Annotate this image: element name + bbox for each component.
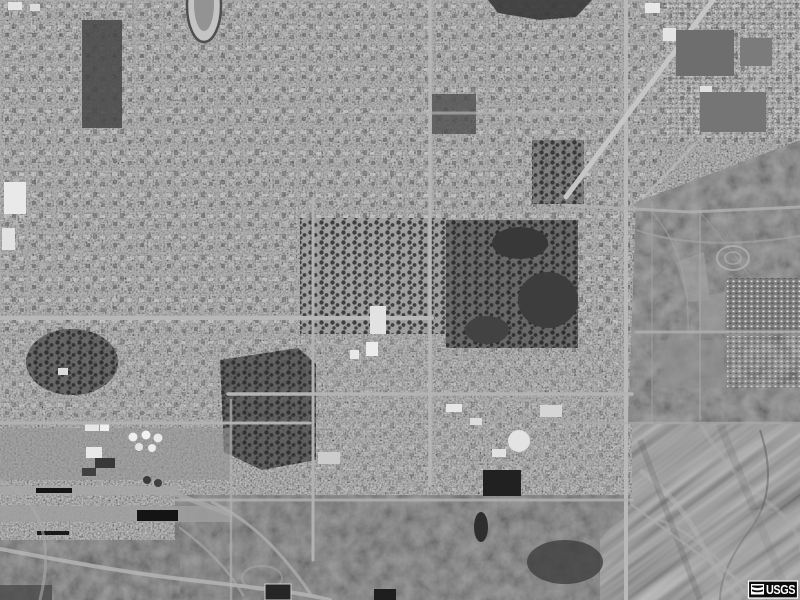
empty-lots: [660, 340, 724, 388]
bldg: [446, 404, 462, 412]
runway-2-marking: [137, 510, 178, 521]
dark-grove-bottom: [527, 540, 603, 584]
tank: [135, 443, 143, 451]
apron: [0, 428, 230, 480]
bldg: [4, 182, 26, 214]
hangar-dark: [95, 458, 115, 468]
bldg: [318, 452, 340, 464]
usgs-flag-icon: [751, 584, 764, 595]
runway-1: [0, 486, 178, 495]
bldg: [30, 4, 40, 11]
park-trees-dots: [26, 329, 118, 395]
dark-lot: [374, 589, 396, 600]
bldg: [8, 2, 22, 10]
tank: [154, 434, 163, 443]
tank: [129, 433, 138, 442]
subdivision-houses: [727, 278, 800, 334]
runway-1-marking: [36, 488, 72, 493]
residential-trees-dots: [220, 348, 316, 470]
tank: [148, 444, 156, 452]
bldg: [350, 350, 359, 359]
grove-north-trees: [532, 140, 584, 204]
bigbox-roof: [740, 38, 772, 66]
bldg: [2, 228, 15, 250]
clubhouse: [58, 368, 68, 375]
aerial-photo-canvas: USGS: [0, 0, 800, 600]
new-streets: [698, 292, 725, 332]
round-building: [508, 430, 530, 452]
hangar: [100, 424, 109, 431]
rail-yard: [82, 20, 122, 128]
hangar-dark: [82, 468, 96, 476]
bldg: [540, 405, 562, 417]
bldg: [645, 3, 660, 13]
bldg: [370, 306, 386, 334]
usgs-logo: USGS: [749, 581, 798, 598]
bldg: [366, 342, 378, 356]
warehouse-dark: [483, 470, 521, 496]
tank-dark: [143, 476, 151, 484]
industrial-zone: [0, 540, 180, 600]
aerial-photo[interactable]: USGS: [0, 0, 800, 600]
bldg: [470, 418, 482, 425]
airport-area: [0, 423, 232, 535]
tank-dark: [154, 479, 162, 487]
bigbox-roof: [700, 92, 766, 132]
pond: [474, 512, 488, 542]
tree-blob: [518, 272, 578, 328]
dark-lot: [265, 584, 291, 600]
tree-blob: [492, 227, 548, 259]
usgs-logo-text: USGS: [766, 583, 795, 597]
tank: [142, 431, 151, 440]
hangar: [86, 447, 102, 458]
tree-blob: [465, 316, 509, 344]
bigbox-roof: [676, 30, 734, 76]
bldg: [492, 449, 506, 457]
bldg: [663, 28, 676, 41]
subdivision-houses: [727, 336, 800, 388]
